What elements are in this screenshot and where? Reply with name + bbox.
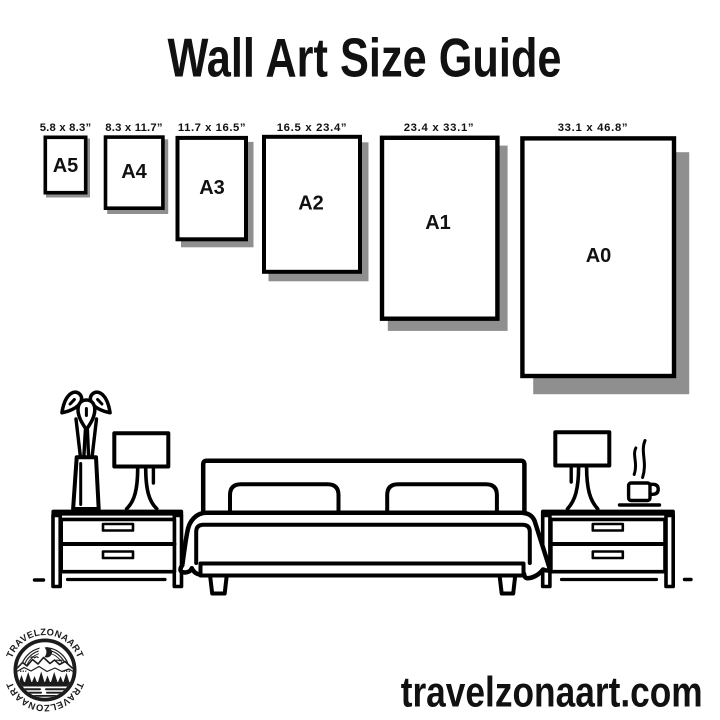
svg-text:16.5 x 23.4”: 16.5 x 23.4”	[277, 122, 348, 134]
svg-text:A3: A3	[199, 177, 225, 199]
svg-text:11.7 x 16.5”: 11.7 x 16.5”	[178, 122, 246, 134]
svg-text:Wall Art Size Guide: Wall Art Size Guide	[168, 28, 562, 89]
svg-text:33.1 x 46.8”: 33.1 x 46.8”	[558, 122, 629, 134]
svg-text:travelzonaart.com: travelzonaart.com	[401, 670, 703, 717]
svg-text:A2: A2	[298, 193, 324, 215]
svg-text:A5: A5	[53, 155, 79, 177]
svg-text:A1: A1	[425, 212, 451, 234]
svg-text:8.3 x 11.7”: 8.3 x 11.7”	[105, 122, 162, 134]
svg-text:A4: A4	[121, 161, 147, 183]
svg-text:23.4 x 33.1”: 23.4 x 33.1”	[404, 122, 475, 134]
svg-text:5.8 x 8.3”: 5.8 x 8.3”	[40, 122, 92, 134]
svg-text:A0: A0	[586, 245, 612, 267]
